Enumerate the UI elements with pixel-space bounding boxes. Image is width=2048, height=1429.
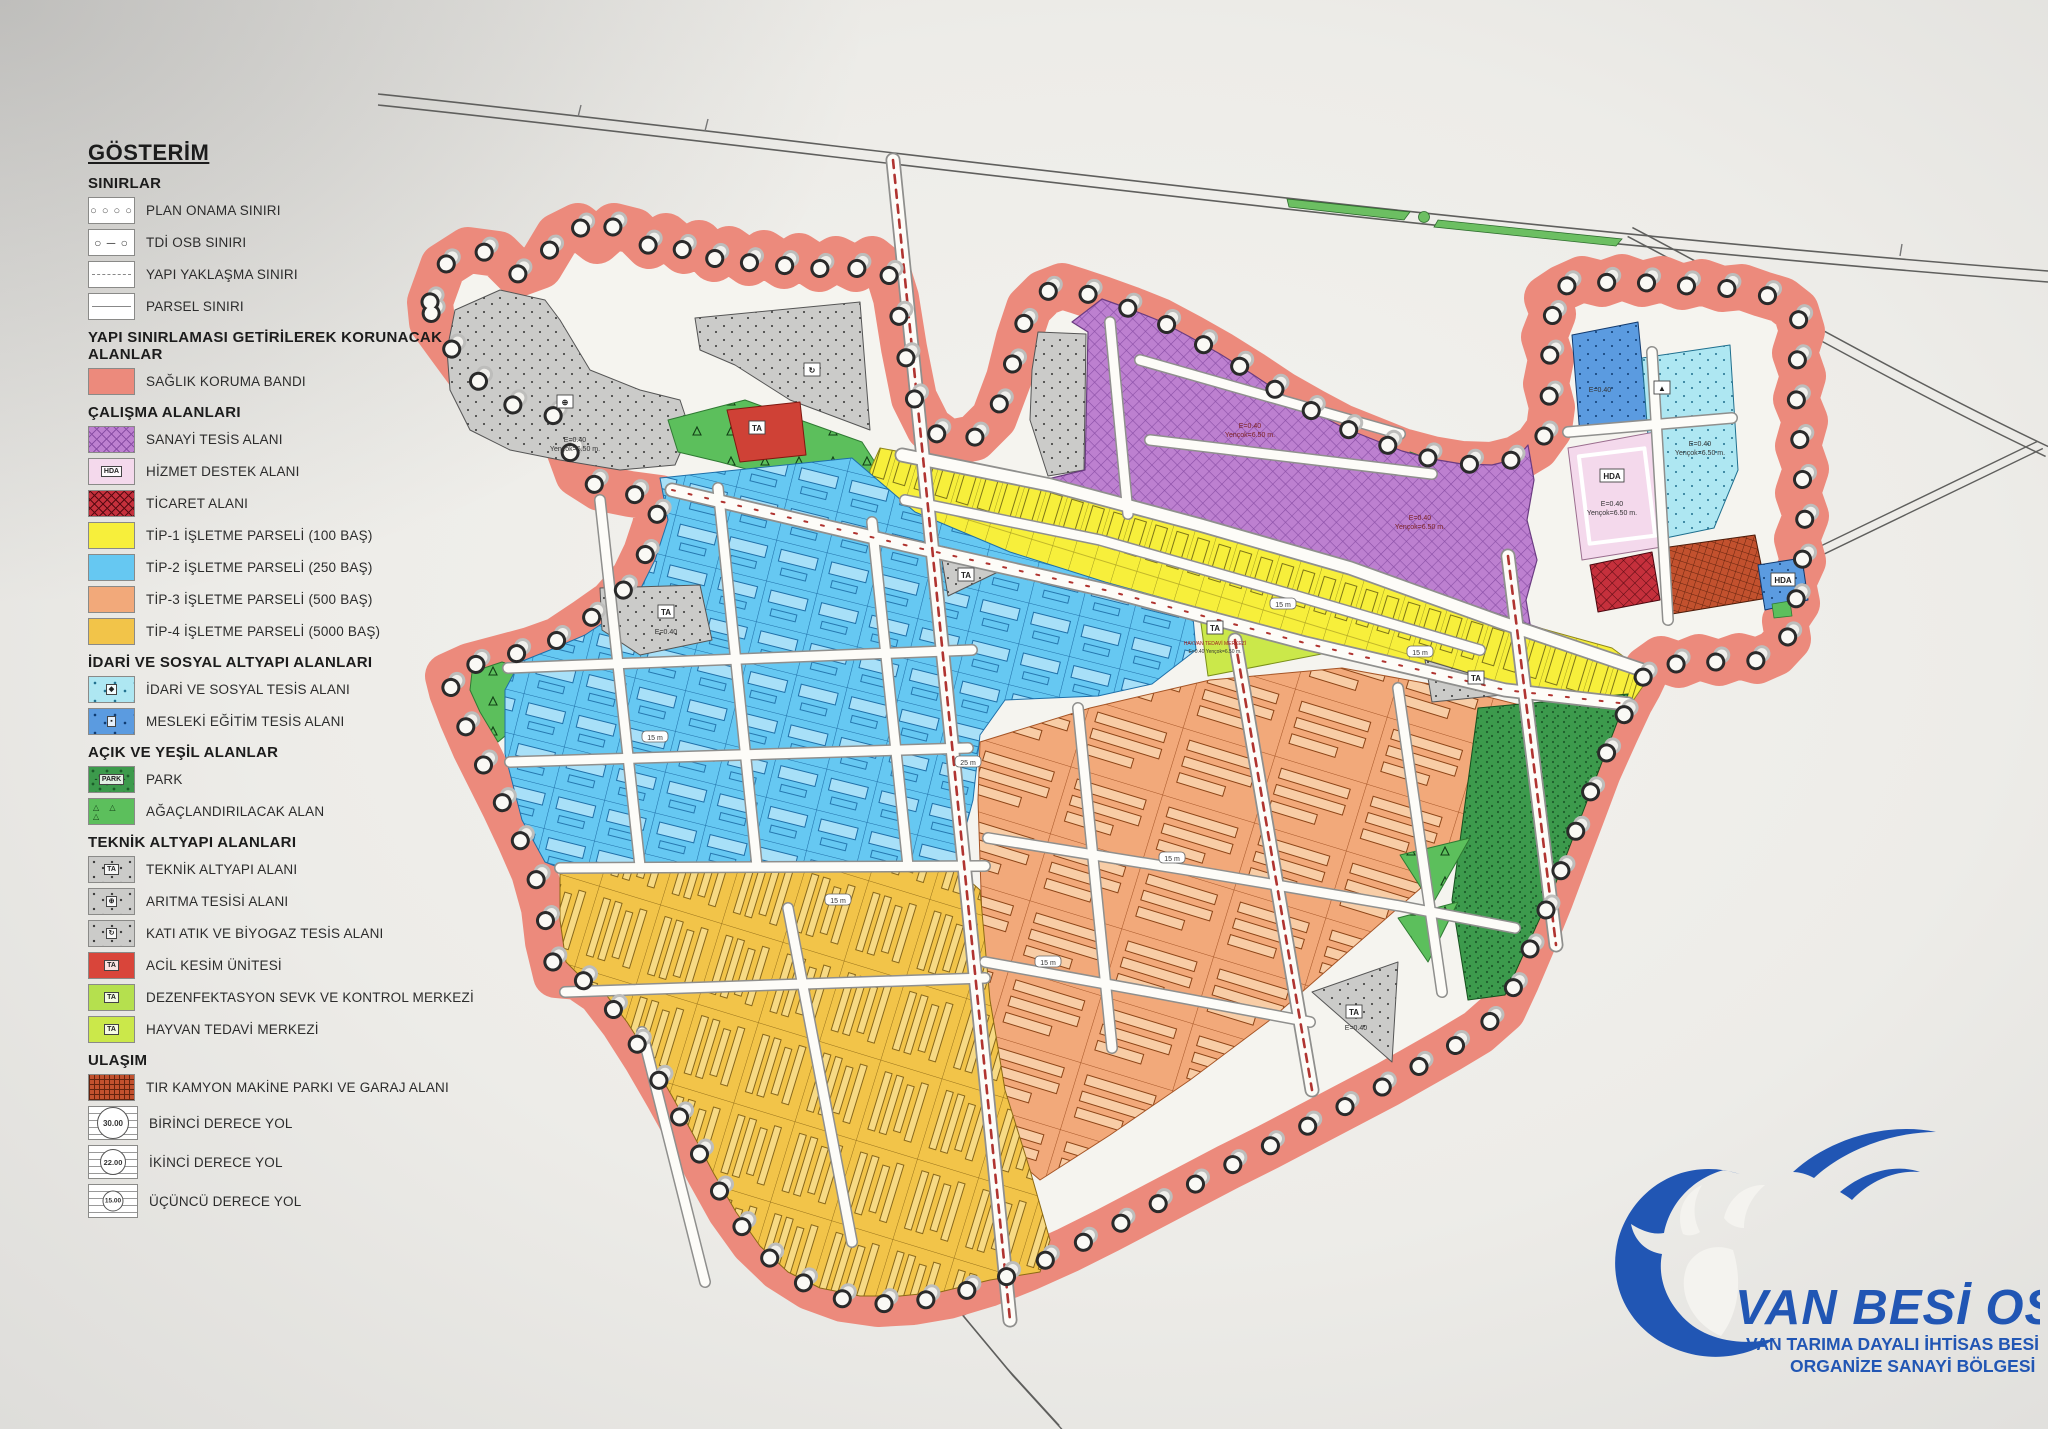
sanayi-swatch [88,426,135,453]
legend-item-label: PLAN ONAMA SINIRI [146,203,281,218]
legend-item: AĞAÇLANDIRILACAK ALAN [88,798,508,825]
road-width-chip-label: 15 m [1164,856,1180,863]
legend-item: ◆İDARİ VE SOSYAL TESİS ALANI [88,676,508,703]
legend-item-label: ARITMA TESİSİ ALANI [146,894,288,909]
legend-item: TİP-2 İŞLETME PARSELİ (250 BAŞ) [88,554,508,581]
plan-sheet: TATATATATATAHDAHDA⊕↻▲E=0.40Yençok=6.50 m… [0,0,2048,1429]
map-zone-code: TA [1210,624,1220,633]
map-annotation: E=0.40 [1689,441,1711,448]
logo-graphic: VAN BESİ OSB VAN TARIMA DAYALI İHTİSAS B… [1588,1112,2040,1402]
swoosh-small [1840,1169,1920,1200]
swatch-badge: PARK [99,774,124,785]
map-zone-code: ▲ [1658,384,1666,393]
teknik-swatch: TA [88,856,135,883]
acil-swatch: TA [88,952,135,979]
tir-swatch [88,1074,135,1101]
legend-item: 15.00ÜÇÜNCÜ DERECE YOL [88,1184,508,1218]
legend: GÖSTERİM SINIRLARPLAN ONAMA SINIRITDİ OS… [88,140,508,1223]
map-zone-code: HDA [1603,472,1621,481]
legend-item: 22.00İKİNCİ DERECE YOL [88,1145,508,1179]
map-annotation: E=0.40 [655,629,677,636]
map-zone-code: TA [1349,1008,1359,1017]
hayvan-swatch: TA [88,1016,135,1043]
swatch-badge: TA [104,864,119,875]
legend-item-label: ACİL KESİM ÜNİTESİ [146,958,282,973]
legend-item-label: TİP-2 İŞLETME PARSELİ (250 BAŞ) [146,560,373,575]
swatch-badge: TA [104,1024,119,1035]
legend-item: TAHAYVAN TEDAVİ MERKEZİ [88,1016,508,1043]
legend-body: SINIRLARPLAN ONAMA SINIRITDİ OSB SINIRIY… [88,175,508,1218]
swatch-badge: ◆ [106,684,117,695]
legend-item-label: KATI ATIK VE BİYOGAZ TESİS ALANI [146,926,383,941]
map-zone-code: ↻ [809,366,816,375]
swatch-badge: ▪ [107,716,115,727]
map-zone-code: TA [1471,674,1481,683]
road-width-circle: 22.00 [100,1149,126,1175]
legend-item: SAĞLIK KORUMA BANDI [88,368,508,395]
legend-item-label: HAYVAN TEDAVİ MERKEZİ [146,1022,319,1037]
zone-mesleki-egitim [1572,322,1648,436]
legend-item: TİP-4 İŞLETME PARSELİ (5000 BAŞ) [88,618,508,645]
road-swatch: 15.00 [88,1184,138,1218]
map-annotation: Yençok=6.50 m. [550,446,600,453]
legend-item-label: TİP-1 İŞLETME PARSELİ (100 BAŞ) [146,528,373,543]
legend-item: ↻KATI ATIK VE BİYOGAZ TESİS ALANI [88,920,508,947]
yapi-yaklasma-swatch [88,261,135,288]
legend-title: GÖSTERİM [88,140,508,166]
idari-swatch: ◆ [88,676,135,703]
map-annotation: Yençok=6.50 m. [1395,524,1445,531]
zone-acil-kesim [727,402,806,462]
legend-item-label: TDİ OSB SINIRI [146,235,246,250]
legend-item: TIR KAMYON MAKİNE PARKI VE GARAJ ALANI [88,1074,508,1101]
map-annotation: HAYVAN TEDAVİ MERKEZİ [1184,640,1246,647]
legend-section-heading: TEKNİK ALTYAPI ALANLARI [88,834,508,851]
swatch-badge: TA [104,992,119,1003]
legend-section-heading: SINIRLAR [88,175,508,192]
swatch-badge: ↻ [106,928,118,939]
legend-item: TİP-1 İŞLETME PARSELİ (100 BAŞ) [88,522,508,549]
tdi-osb-swatch [88,229,135,256]
bull-muzzle [1684,1247,1738,1336]
legend-item-label: SAĞLIK KORUMA BANDI [146,374,306,389]
legend-item-label: MESLEKİ EĞİTİM TESİS ALANI [146,714,345,729]
tip3-swatch [88,586,135,613]
legend-item: SANAYİ TESİS ALANI [88,426,508,453]
legend-section-heading: İDARİ VE SOSYAL ALTYAPI ALANLARI [88,654,508,671]
map-annotation: E=0.40 [1409,515,1431,522]
legend-item: PLAN ONAMA SINIRI [88,197,508,224]
road-width-chip-label: 15 m [1040,960,1056,967]
road-width-circle: 15.00 [103,1191,124,1212]
road-swatch: 30.00 [88,1106,138,1140]
road-median-island [1419,212,1430,223]
legend-item: TATEKNİK ALTYAPI ALANI [88,856,508,883]
legend-item: TİP-3 İŞLETME PARSELİ (500 BAŞ) [88,586,508,613]
map-zone-code: ⊕ [562,398,569,407]
legend-item: PARKPARK [88,766,508,793]
road-swatch: 22.00 [88,1145,138,1179]
mesleki-swatch: ▪ [88,708,135,735]
park-swatch: PARK [88,766,135,793]
parsel-swatch [88,293,135,320]
road-width-circle: 30.00 [97,1107,129,1139]
road-width-chip-label: 15 m [1412,650,1428,657]
legend-item: TAACİL KESİM ÜNİTESİ [88,952,508,979]
legend-item: ⊕ARITMA TESİSİ ALANI [88,888,508,915]
legend-item-label: İKİNCİ DERECE YOL [149,1155,283,1170]
bull-horn-right [1724,1185,1765,1228]
tip2-swatch [88,554,135,581]
legend-item-label: TEKNİK ALTYAPI ALANI [146,862,297,877]
map-annotation: E=0.40 [564,437,586,444]
legend-section-heading: YAPI SINIRLAMASI GETİRİLEREK KORUNACAK A… [88,329,508,363]
legend-item-label: DEZENFEKTASYON SEVK VE KONTROL MERKEZİ [146,990,474,1005]
legend-item-label: SANAYİ TESİS ALANI [146,432,283,447]
road-width-chip-label: 15 m [647,735,663,742]
legend-item-label: BİRİNCİ DERECE YOL [149,1116,293,1131]
legend-item: TADEZENFEKTASYON SEVK VE KONTROL MERKEZİ [88,984,508,1011]
aritma-swatch: ⊕ [88,888,135,915]
plan-onama-swatch [88,197,135,224]
dezenf-swatch: TA [88,984,135,1011]
logo-subtitle-1: VAN TARIMA DAYALI İHTİSAS BESİ [1746,1334,2039,1354]
legend-item-label: TİP-4 İŞLETME PARSELİ (5000 BAŞ) [146,624,380,639]
logo-name: VAN BESİ OSB [1735,1281,2040,1335]
legend-item: 30.00BİRİNCİ DERECE YOL [88,1106,508,1140]
map-annotation: E=0.40 [1345,1025,1367,1032]
legend-item: TDİ OSB SINIRI [88,229,508,256]
legend-item-label: ÜÇÜNCÜ DERECE YOL [149,1194,301,1209]
map-zone-code: TA [661,608,671,617]
map-annotation: Yençok=6.50 m. [1675,450,1725,457]
logo-subtitle-2: ORGANİZE SANAYİ BÖLGESİ [1790,1356,2035,1376]
map-zone-code: TA [961,571,971,580]
map-annotation: E=0.40 Yençok=6.50 m. [1188,649,1241,655]
legend-item-label: TİCARET ALANI [146,496,248,511]
saglik-swatch [88,368,135,395]
legend-item-label: YAPI YAKLAŞMA SINIRI [146,267,298,282]
map-annotation: E=0.40 [1589,387,1611,394]
legend-item: PARSEL SINIRI [88,293,508,320]
swatch-badge: HDA [101,466,122,477]
legend-item-label: PARK [146,772,183,787]
legend-item: YAPI YAKLAŞMA SINIRI [88,261,508,288]
map-annotation: Yençok=6.50 m. [1587,510,1637,517]
kati-swatch: ↻ [88,920,135,947]
legend-section-heading: ÇALIŞMA ALANLARI [88,404,508,421]
legend-item: ▪MESLEKİ EĞİTİM TESİS ALANI [88,708,508,735]
legend-item-label: TİP-3 İŞLETME PARSELİ (500 BAŞ) [146,592,373,607]
map-annotation: E=0.40 [1239,423,1261,430]
legend-item: HDAHİZMET DESTEK ALANI [88,458,508,485]
tip1-swatch [88,522,135,549]
swatch-badge: TA [104,960,119,971]
map-zone-code: HDA [1774,576,1792,585]
legend-item: TİCARET ALANI [88,490,508,517]
map-annotation: Yençok=6.50 m. [1225,432,1275,439]
tip4-swatch [88,618,135,645]
road-width-chip-label: 15 m [1275,602,1291,609]
ticaret-swatch [88,490,135,517]
road-width-chip-label: 15 m [830,898,846,905]
legend-item-label: PARSEL SINIRI [146,299,244,314]
road-width-chip-label: 25 m [960,760,976,767]
agac-swatch [88,798,135,825]
hizmet-swatch: HDA [88,458,135,485]
map-zone-code: TA [752,424,762,433]
logo-van-besi-osb: VAN BESİ OSB VAN TARIMA DAYALI İHTİSAS B… [1588,1112,2040,1402]
legend-section-heading: AÇIK VE YEŞİL ALANLAR [88,744,508,761]
swatch-badge: ⊕ [106,896,118,907]
legend-section-heading: ULAŞIM [88,1052,508,1069]
legend-item-label: TIR KAMYON MAKİNE PARKI VE GARAJ ALANI [146,1080,449,1095]
legend-item-label: İDARİ VE SOSYAL TESİS ALANI [146,682,350,697]
legend-item-label: AĞAÇLANDIRILACAK ALAN [146,804,324,819]
map-annotation: E=0.40 [1601,501,1623,508]
legend-item-label: HİZMET DESTEK ALANI [146,464,300,479]
